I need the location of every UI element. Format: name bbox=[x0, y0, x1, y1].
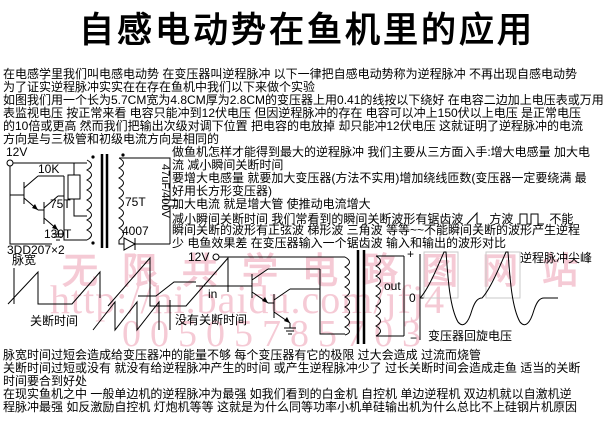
supply-terminal bbox=[7, 160, 13, 166]
wire bbox=[376, 256, 404, 336]
primary-bottom-turns-label: 130T bbox=[44, 227, 72, 241]
document-page: 无限共学电路图网站 http://hi.baidu.com/jfj4 00505… bbox=[0, 0, 614, 435]
output-label: out bbox=[384, 279, 401, 293]
transformer-core bbox=[358, 250, 364, 344]
capacitor-value-label: 47uF/400V bbox=[159, 164, 171, 218]
transistor-symbol bbox=[24, 176, 38, 210]
supply-voltage-label: 12V bbox=[188, 250, 209, 264]
axis-plus-label: + bbox=[407, 247, 414, 261]
no-off-time-label: 没有关断时间 bbox=[175, 312, 247, 327]
ground-symbol bbox=[284, 323, 296, 334]
primary-top-turns-label: 75T bbox=[50, 197, 71, 211]
polarity-dot bbox=[121, 153, 124, 156]
wire bbox=[268, 269, 345, 334]
off-time-label: 关断时间 bbox=[30, 313, 78, 328]
transistor-symbol bbox=[252, 269, 268, 303]
supply-voltage-label: 12V bbox=[6, 145, 27, 159]
footer-line: 程脉冲最强 如反激励自控机 灯炮机等等 这就是为什么同等功率小机单硅输出机为什么… bbox=[3, 401, 577, 414]
secondary-winding bbox=[376, 256, 381, 336]
resistor-value-label: 10K bbox=[38, 162, 59, 176]
pulse-width-label: 脉宽 bbox=[12, 252, 36, 267]
resistor-symbol bbox=[68, 175, 80, 199]
footer-line: 关断时间过短或没有 就没有给逆程脉冲产生的时间 或产生逆程脉冲少了 过长关断时间… bbox=[3, 362, 580, 375]
primary-winding bbox=[87, 160, 92, 240]
polarity-dot bbox=[91, 155, 94, 158]
secondary-turns-label: 75T bbox=[125, 195, 146, 209]
page-title: 自感电动势在鱼机里的应用 bbox=[0, 2, 614, 53]
axis-minus-label: − bbox=[410, 331, 417, 345]
emitter-arrow bbox=[32, 204, 38, 210]
axis-line bbox=[420, 254, 432, 340]
ring-voltage-label: 变压器回旋电压 bbox=[428, 328, 512, 343]
sawtooth-with-gap-waveform bbox=[8, 272, 100, 304]
methods-line: 加大电流 就是增大管 使推动电流增大 bbox=[172, 198, 371, 211]
axis-zero-label: 0 bbox=[409, 291, 416, 305]
supply-terminal bbox=[213, 254, 219, 260]
emitter-arrow bbox=[284, 317, 290, 323]
flyback-spike-label: 逆程脉冲尖峰 bbox=[520, 250, 592, 265]
diode-type-label: 4007 bbox=[122, 224, 149, 238]
input-step-waveform bbox=[138, 282, 196, 296]
primary-winding bbox=[345, 257, 350, 335]
waveform-comparison-diagram: 脉宽 关断时间 没有关断时间 12V in out + 0 − bbox=[0, 246, 614, 350]
polarity-dot bbox=[91, 241, 94, 244]
input-label: in bbox=[208, 287, 217, 301]
oscillator-circuit-diagram: 12V 10K 75T 130T 75T 47uF/400V 4007 3DD2… bbox=[2, 144, 180, 256]
emitter-arrow bbox=[262, 297, 268, 303]
transformer-core bbox=[102, 154, 107, 248]
continuous-sawtooth-waveform bbox=[93, 300, 170, 330]
